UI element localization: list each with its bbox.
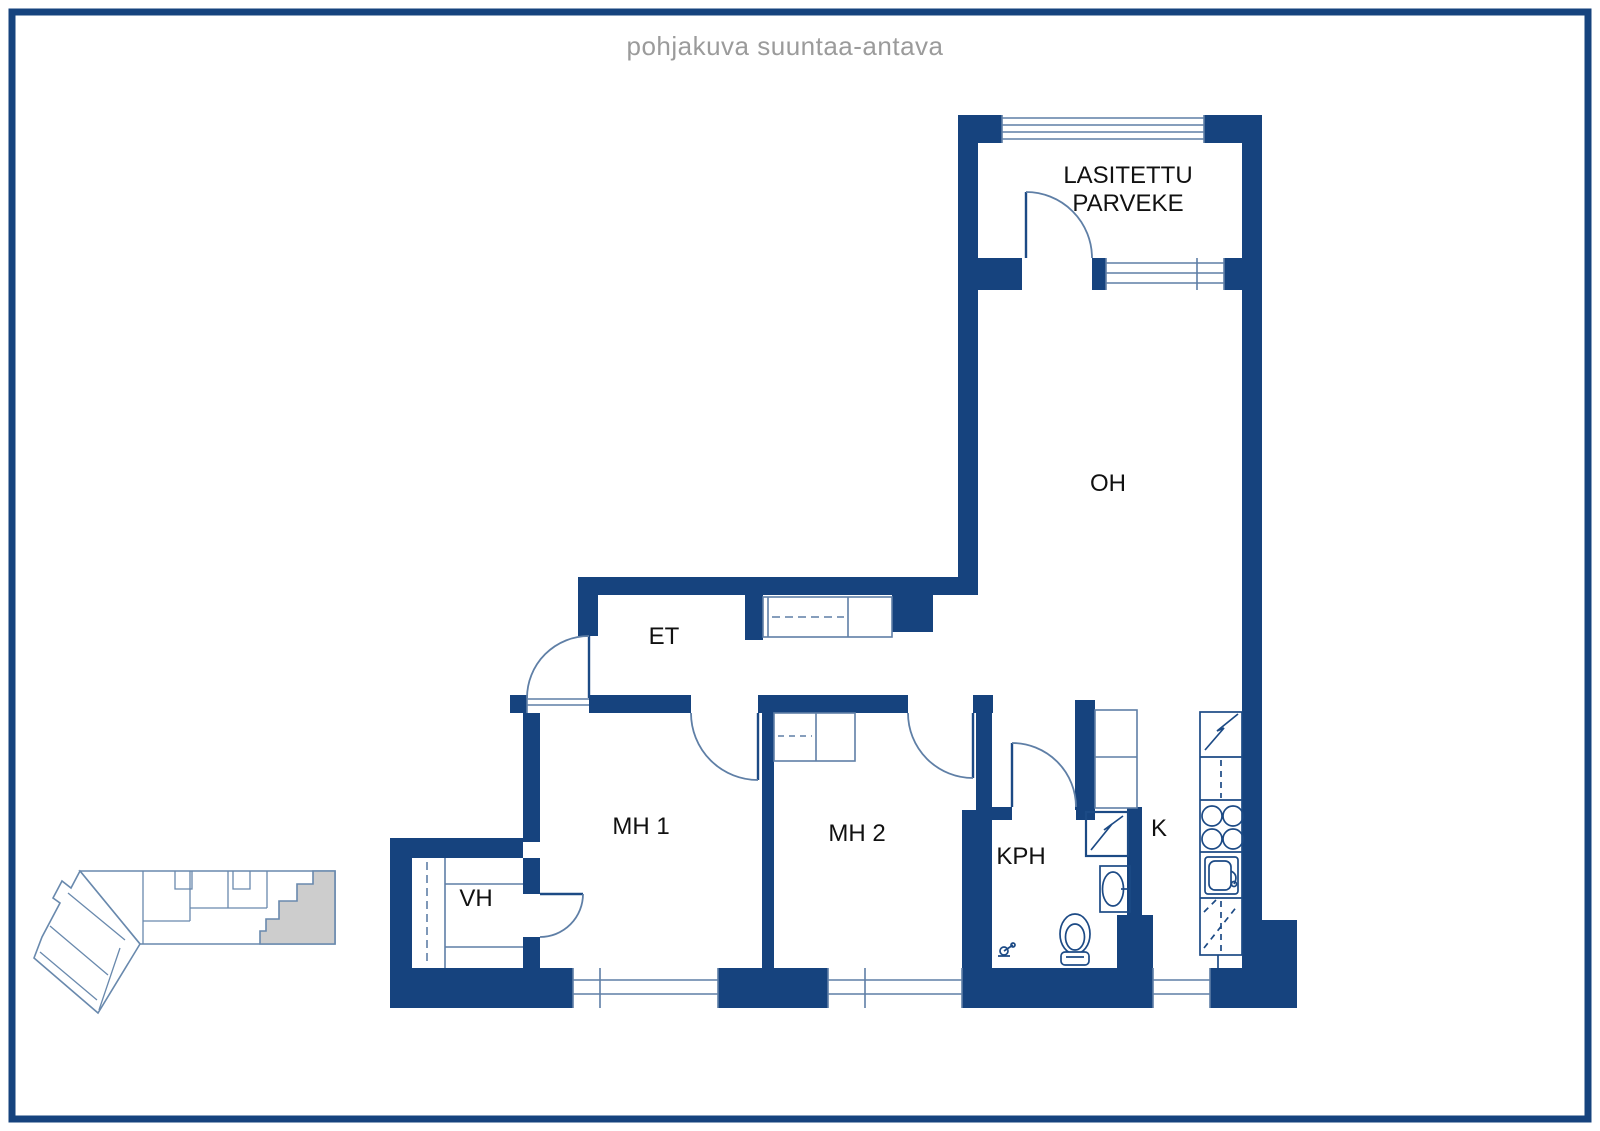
living-room-window (1106, 258, 1224, 290)
room-label-bedroom2: MH 2 (828, 820, 885, 847)
floor-plan-drawing: pohjakuva suuntaa-antava (0, 0, 1600, 1131)
room-label-balcony-line2: PARVEKE (1072, 190, 1183, 217)
bedroom1-window (573, 968, 718, 1008)
entry-door (527, 636, 589, 713)
room-label-balcony-line1: LASITETTU (1063, 162, 1192, 189)
page-border (12, 12, 1588, 1119)
closet-door (540, 894, 583, 937)
bedroom2-window (828, 968, 962, 1008)
bedroom2-door (908, 713, 973, 778)
kitchen-counter (1200, 712, 1243, 968)
room-label-bedroom1: MH 1 (612, 813, 669, 840)
walls (390, 115, 1297, 1008)
balcony-glazing (1002, 115, 1204, 143)
hall-tall-cabinet (1095, 710, 1137, 808)
room-label-hall: ET (649, 623, 680, 650)
room-label-kitchen: K (1151, 815, 1167, 842)
floor-plan-page: pohjakuva suuntaa-antava (0, 0, 1600, 1131)
toilet-icon (1060, 914, 1090, 965)
closet-shelving (427, 858, 523, 968)
room-label-closet: VH (459, 885, 492, 912)
room-label-bathroom: KPH (996, 843, 1045, 870)
bedroom1-door (691, 713, 758, 780)
room-label-living: OH (1090, 470, 1126, 497)
hall-wardrobe (763, 597, 892, 637)
bathroom-fixtures (998, 812, 1130, 965)
bathroom-door (1012, 743, 1076, 807)
floor-drain-tap-icon (998, 943, 1015, 956)
washbasin-icon (1100, 866, 1130, 912)
plan-disclaimer-title: pohjakuva suuntaa-antava (626, 31, 943, 61)
bedroom2-wardrobe (774, 713, 855, 761)
building-key-plan (34, 871, 335, 1013)
kitchen-window (1153, 968, 1210, 1008)
